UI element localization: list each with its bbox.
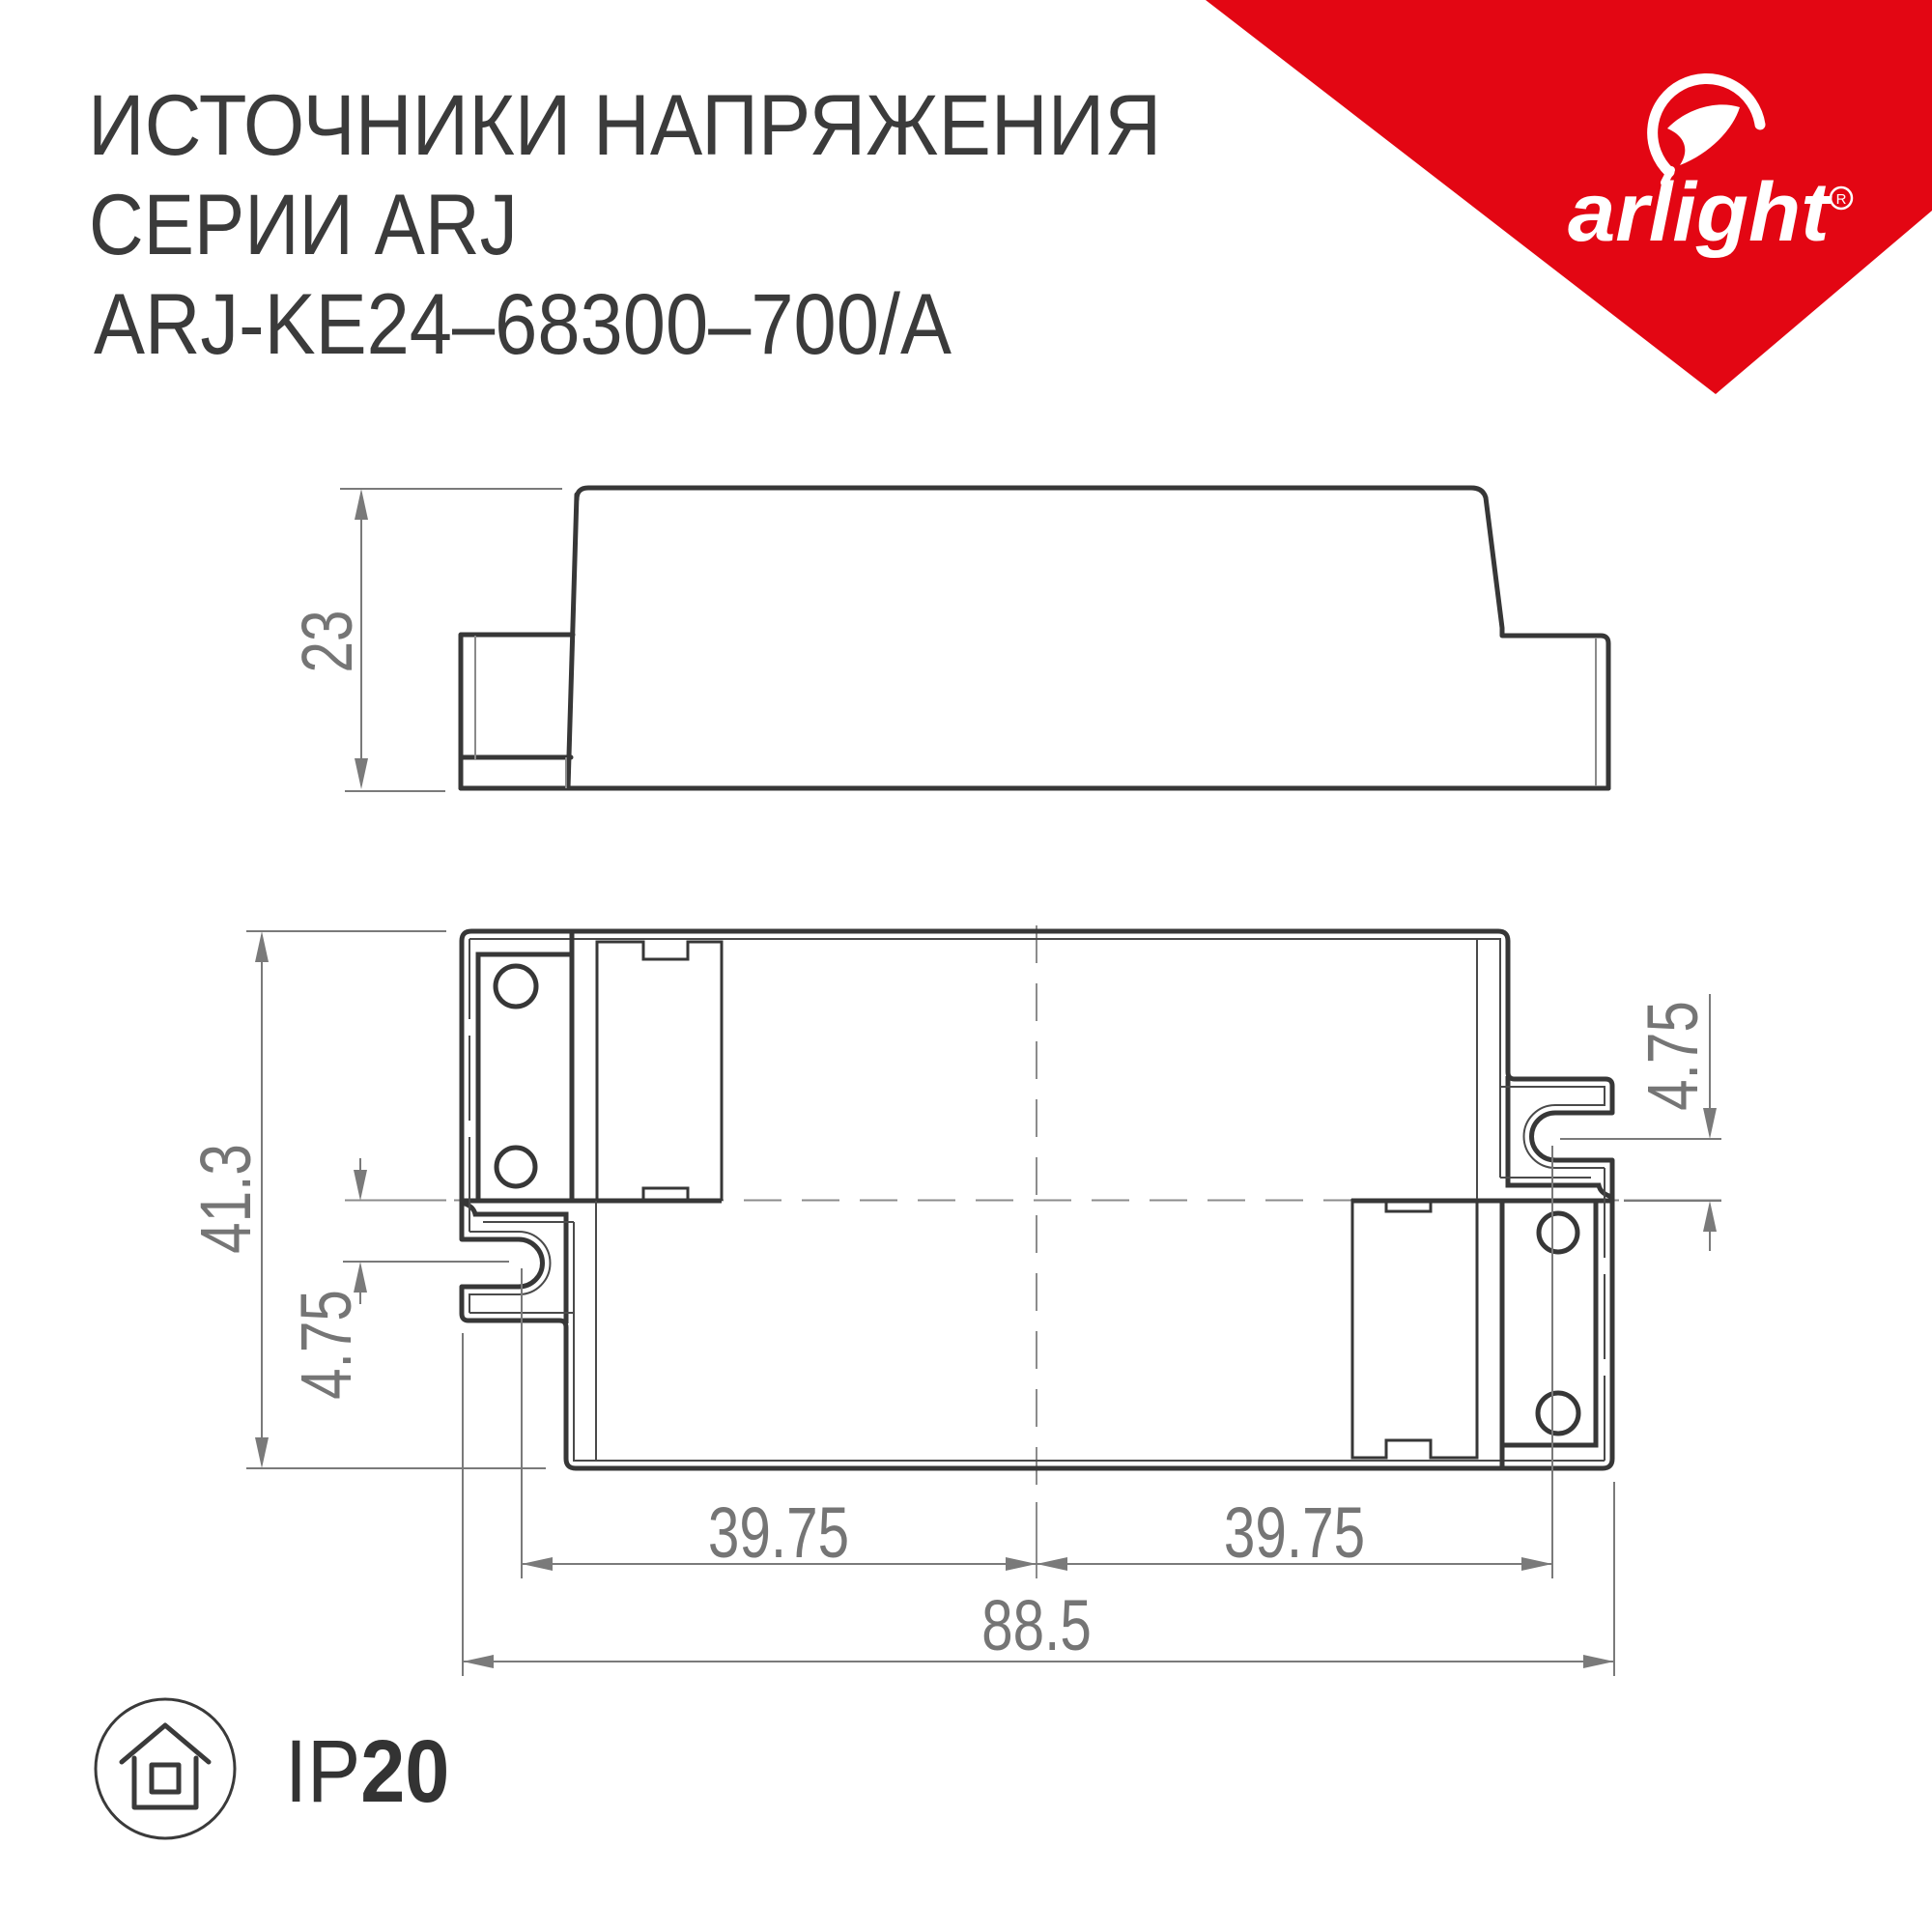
svg-text:41.3: 41.3: [187, 1144, 267, 1254]
svg-text:39.75: 39.75: [1224, 1494, 1365, 1574]
svg-text:4.75: 4.75: [1634, 1001, 1714, 1111]
svg-text:R: R: [1836, 191, 1847, 208]
svg-text:arlight: arlight: [1568, 166, 1833, 259]
svg-text:ИСТОЧНИКИ НАПРЯЖЕНИЯ: ИСТОЧНИКИ НАПРЯЖЕНИЯ: [88, 78, 1161, 174]
svg-text:39.75: 39.75: [708, 1494, 849, 1574]
svg-text:23: 23: [289, 610, 368, 672]
svg-text:СЕРИИ ARJ: СЕРИИ ARJ: [89, 176, 518, 272]
svg-text:88.5: 88.5: [981, 1587, 1092, 1666]
svg-text:4.75: 4.75: [288, 1290, 367, 1400]
svg-text:IP20: IP20: [285, 1721, 449, 1821]
svg-text:ARJ-KE24–68300–700/А: ARJ-KE24–68300–700/А: [94, 276, 952, 372]
